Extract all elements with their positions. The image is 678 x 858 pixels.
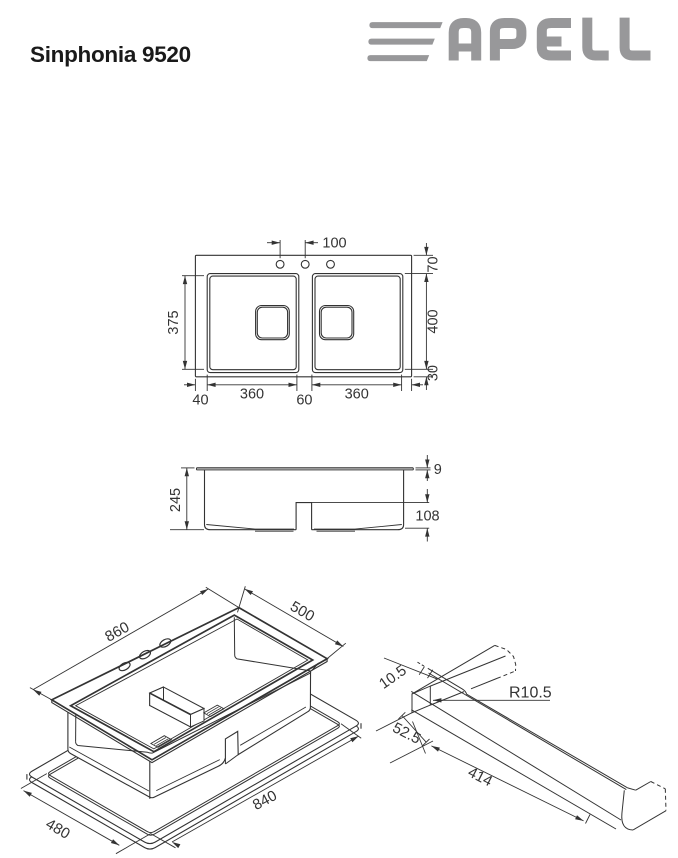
svg-text:70: 70 — [426, 256, 442, 272]
svg-text:860: 860 — [102, 619, 132, 646]
svg-text:R10.5: R10.5 — [509, 685, 552, 702]
svg-text:245: 245 — [168, 488, 184, 512]
svg-text:480: 480 — [43, 815, 73, 842]
svg-text:30: 30 — [426, 365, 442, 381]
svg-text:500: 500 — [287, 598, 317, 625]
svg-text:360: 360 — [240, 387, 264, 403]
svg-text:360: 360 — [345, 387, 369, 403]
svg-text:414: 414 — [465, 764, 495, 791]
svg-text:52.5: 52.5 — [390, 719, 424, 747]
svg-text:400: 400 — [426, 309, 442, 333]
svg-text:60: 60 — [296, 393, 312, 409]
svg-text:375: 375 — [166, 310, 182, 334]
svg-text:40: 40 — [192, 393, 208, 409]
svg-text:108: 108 — [415, 508, 439, 524]
svg-text:9: 9 — [434, 462, 442, 478]
svg-text:840: 840 — [250, 787, 280, 814]
svg-text:100: 100 — [322, 235, 346, 251]
